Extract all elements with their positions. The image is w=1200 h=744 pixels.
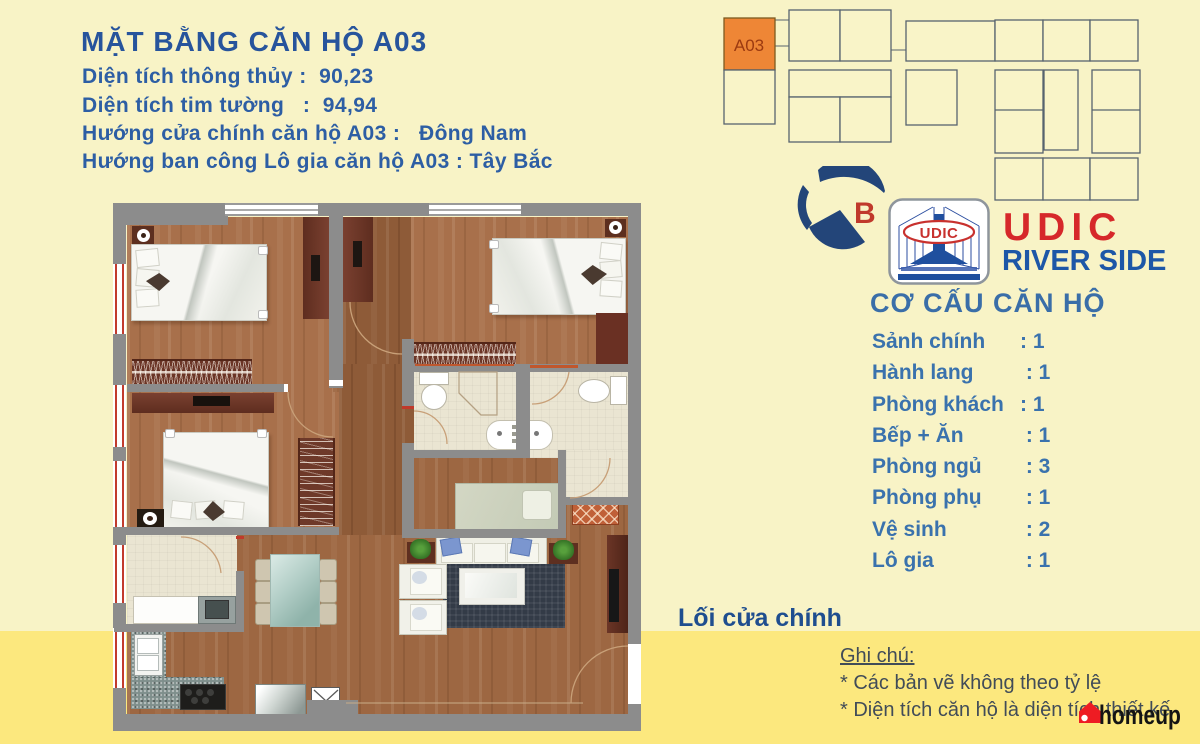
svg-text:A03: A03 (734, 36, 764, 55)
svg-text:UDIC: UDIC (920, 225, 959, 242)
svg-text:B: B (854, 197, 876, 230)
